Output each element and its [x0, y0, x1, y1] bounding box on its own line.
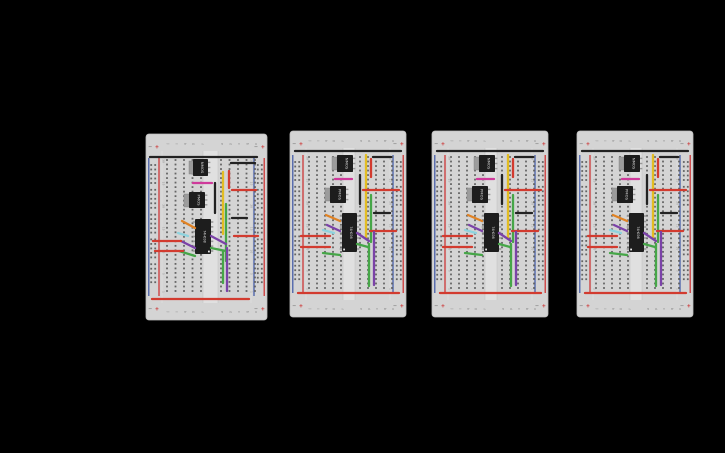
hole: [646, 165, 648, 167]
hole: [183, 186, 185, 188]
hole: [166, 218, 168, 220]
hole: [261, 281, 263, 283]
hole: [316, 283, 318, 285]
hole: [683, 166, 685, 168]
column-letter: j: [450, 308, 454, 310]
hole: [324, 224, 326, 226]
hole: [154, 281, 156, 283]
hole: [367, 179, 369, 181]
hole: [175, 290, 177, 292]
hole: [246, 272, 248, 274]
chip-pmos[interactable]: PMOS: [612, 186, 635, 203]
hole: [627, 269, 629, 271]
hole: [367, 161, 369, 163]
hole: [400, 166, 402, 168]
hole: [687, 236, 689, 238]
hole: [192, 209, 194, 211]
column-letter: g: [474, 308, 478, 310]
hole: [517, 278, 519, 280]
hole: [367, 210, 369, 212]
hole: [237, 281, 239, 283]
hole: [175, 173, 177, 175]
chip-nmos[interactable]: NMOS: [474, 155, 497, 172]
hole: [375, 179, 377, 181]
hole: [308, 210, 310, 212]
hole: [316, 224, 318, 226]
hole: [670, 278, 672, 280]
hole: [662, 287, 664, 289]
hole: [687, 190, 689, 192]
hole: [183, 268, 185, 270]
hole: [581, 274, 583, 276]
column-letter: g: [192, 143, 196, 145]
hole: [400, 199, 402, 201]
hole: [542, 245, 544, 247]
hole: [450, 192, 452, 194]
transistor-leg: [205, 204, 207, 205]
hole: [654, 165, 656, 167]
hole: [585, 204, 587, 206]
hole: [183, 277, 185, 279]
hole: [662, 197, 664, 199]
breadboard-4[interactable]: −+−+−+−+303025252020151510105511jihgfedc…: [577, 131, 693, 317]
hole: [654, 287, 656, 289]
hole: [662, 170, 664, 172]
hole: [595, 255, 597, 257]
hole: [332, 183, 334, 185]
hole: [581, 260, 583, 262]
hole: [154, 248, 156, 250]
hole: [183, 173, 185, 175]
breadboard-2[interactable]: −+−+−+−+303025252020151510105511jihgfedc…: [290, 131, 406, 317]
hole: [678, 192, 680, 194]
hole: [440, 175, 442, 177]
hole: [595, 274, 597, 276]
hole: [257, 207, 259, 209]
hole: [619, 242, 621, 244]
hole: [436, 190, 438, 192]
hole: [261, 272, 263, 274]
hole: [517, 219, 519, 221]
hole: [474, 283, 476, 285]
hole: [332, 255, 334, 257]
row-number: 25: [389, 179, 393, 183]
hole: [359, 278, 361, 280]
hole: [254, 277, 256, 279]
hole: [166, 254, 168, 256]
hole: [538, 204, 540, 206]
hole: [670, 161, 672, 163]
hole: [396, 224, 398, 226]
chip-pmos[interactable]: PMOS: [467, 186, 490, 203]
hole: [474, 242, 476, 244]
hole: [585, 190, 587, 192]
hole: [687, 211, 689, 213]
column-letter: j: [308, 140, 312, 142]
transistor-leg: [495, 158, 497, 159]
hole: [542, 195, 544, 197]
hole: [458, 156, 460, 158]
hole: [440, 220, 442, 222]
hole: [533, 260, 535, 262]
row-number: 1: [250, 291, 254, 293]
hole: [585, 166, 587, 168]
row-number: 20: [162, 204, 166, 208]
hole: [308, 215, 310, 217]
hole: [220, 204, 222, 206]
breadboard-3[interactable]: −+−+−+−+303025252020151510105511jihgfedc…: [432, 131, 548, 317]
hole: [396, 195, 398, 197]
chip-nmos[interactable]: NMOS: [189, 159, 210, 176]
hole: [525, 237, 527, 239]
transistor-leg: [495, 163, 497, 164]
hole: [683, 265, 685, 267]
ic-pin: [357, 248, 359, 250]
hole: [383, 246, 385, 248]
hole: [619, 237, 621, 239]
hole: [237, 249, 239, 251]
hole: [308, 242, 310, 244]
hole: [400, 190, 402, 192]
hole: [254, 245, 256, 247]
hole: [375, 174, 377, 176]
rail-minus-label: −: [680, 142, 684, 148]
hole: [367, 165, 369, 167]
hole: [581, 220, 583, 222]
hole: [683, 254, 685, 256]
hole: [257, 202, 259, 204]
hole: [298, 236, 300, 238]
hole: [440, 179, 442, 181]
hole: [200, 263, 202, 265]
hole: [501, 246, 503, 248]
hole: [466, 165, 468, 167]
hole: [150, 239, 152, 241]
hole: [154, 268, 156, 270]
hole: [436, 236, 438, 238]
hole: [332, 260, 334, 262]
hole: [517, 215, 519, 217]
hole: [400, 278, 402, 280]
hole: [294, 229, 296, 231]
hole: [678, 174, 680, 176]
hole: [458, 283, 460, 285]
hole: [509, 206, 511, 208]
hole: [538, 199, 540, 201]
hole: [391, 237, 393, 239]
hole: [150, 281, 152, 283]
hole: [383, 219, 385, 221]
hole: [150, 223, 152, 225]
column-letter: h: [183, 311, 187, 313]
hole: [482, 278, 484, 280]
hole: [359, 210, 361, 212]
transistor-leg: [205, 199, 207, 200]
hole: [538, 236, 540, 238]
hole: [257, 239, 259, 241]
hole: [400, 215, 402, 217]
hole: [538, 215, 540, 217]
hole: [396, 220, 398, 222]
hole: [229, 209, 231, 211]
hole: [166, 200, 168, 202]
row-number: 5: [162, 273, 166, 275]
hole: [619, 265, 621, 267]
hole: [166, 258, 168, 260]
hole: [359, 206, 361, 208]
hole: [294, 236, 296, 238]
transistor-leg: [488, 194, 490, 195]
hole: [458, 224, 460, 226]
hole: [166, 195, 168, 197]
ic-pin: [627, 237, 629, 239]
hole: [538, 245, 540, 247]
hole: [603, 287, 605, 289]
hole: [683, 211, 685, 213]
hole: [150, 207, 152, 209]
chip-pmos[interactable]: PMOS: [184, 192, 207, 208]
hole: [391, 215, 393, 217]
hole: [474, 255, 476, 257]
hole: [654, 170, 656, 172]
column-letter: a: [391, 140, 395, 142]
hole: [298, 190, 300, 192]
hole: [316, 210, 318, 212]
hole: [340, 260, 342, 262]
hole: [316, 228, 318, 230]
hole: [396, 199, 398, 201]
rail-plus-label: +: [155, 307, 159, 313]
column-letter: j: [166, 311, 170, 313]
hole: [683, 220, 685, 222]
hole: [294, 161, 296, 163]
column-letter: c: [375, 308, 379, 310]
hole: [237, 286, 239, 288]
hole: [501, 255, 503, 257]
hole: [298, 265, 300, 267]
ic-pin: [211, 250, 213, 252]
hole: [246, 227, 248, 229]
hole: [627, 287, 629, 289]
hole: [542, 249, 544, 251]
hole: [367, 174, 369, 176]
hole: [458, 255, 460, 257]
hole: [533, 170, 535, 172]
hole: [383, 201, 385, 203]
hole: [581, 249, 583, 251]
ic-pin: [644, 226, 646, 228]
hole: [175, 204, 177, 206]
hole: [359, 274, 361, 276]
hole: [257, 193, 259, 195]
hole: [509, 224, 511, 226]
hole: [585, 175, 587, 177]
hole: [183, 168, 185, 170]
hole: [391, 170, 393, 172]
hole: [670, 219, 672, 221]
hole: [324, 233, 326, 235]
hole: [678, 283, 680, 285]
hole: [261, 248, 263, 250]
hole: [175, 159, 177, 161]
hole: [237, 209, 239, 211]
hole: [257, 214, 259, 216]
hole: [533, 174, 535, 176]
transistor-leg: [353, 158, 355, 159]
hole: [237, 290, 239, 292]
hole: [687, 245, 689, 247]
hole: [458, 201, 460, 203]
hole: [316, 188, 318, 190]
chip-nmos[interactable]: NMOS: [332, 155, 355, 172]
hole: [254, 222, 256, 224]
hole: [375, 269, 377, 271]
hole: [229, 240, 231, 242]
hole: [261, 218, 263, 220]
chip-pmos[interactable]: PMOS: [325, 186, 348, 203]
hole: [458, 233, 460, 235]
hole: [458, 215, 460, 217]
hole: [450, 219, 452, 221]
hole: [662, 174, 664, 176]
hole: [261, 263, 263, 265]
hole: [308, 161, 310, 163]
hole: [542, 274, 544, 276]
hole: [340, 278, 342, 280]
hole: [611, 237, 613, 239]
hole: [220, 286, 222, 288]
hole: [383, 165, 385, 167]
row-number: 20: [448, 201, 452, 205]
hole: [482, 269, 484, 271]
hole: [436, 211, 438, 213]
hole: [150, 243, 152, 245]
hole: [440, 236, 442, 238]
hole: [261, 202, 263, 204]
hole: [183, 182, 185, 184]
hole: [501, 251, 503, 253]
hole: [340, 224, 342, 226]
chip-nmos[interactable]: NMOS: [619, 155, 642, 172]
hole: [585, 274, 587, 276]
hole: [611, 224, 613, 226]
hole: [257, 281, 259, 283]
hole: [450, 210, 452, 212]
hole: [261, 178, 263, 180]
hole: [646, 206, 648, 208]
hole: [154, 277, 156, 279]
hole: [246, 286, 248, 288]
hole: [375, 206, 377, 208]
hole: [229, 236, 231, 238]
row-number: 30: [306, 156, 310, 160]
hole: [383, 215, 385, 217]
hole: [396, 204, 398, 206]
row-number: 1: [162, 291, 166, 293]
column-letter: h: [183, 143, 187, 145]
hole: [391, 192, 393, 194]
hole: [509, 210, 511, 212]
hole: [670, 206, 672, 208]
hole: [229, 164, 231, 166]
hole: [533, 219, 535, 221]
hole: [359, 283, 361, 285]
hole: [383, 161, 385, 163]
hole: [595, 206, 597, 208]
hole: [246, 177, 248, 179]
hole: [175, 286, 177, 288]
hole: [396, 161, 398, 163]
column-letter: d: [367, 140, 371, 142]
hole: [538, 260, 540, 262]
column-letter: h: [611, 140, 615, 142]
hole: [646, 242, 648, 244]
row-number: 25: [531, 179, 535, 183]
hole: [229, 168, 231, 170]
hole: [308, 192, 310, 194]
hole: [585, 161, 587, 163]
hole: [261, 207, 263, 209]
hole: [440, 254, 442, 256]
hole: [603, 206, 605, 208]
hole: [192, 213, 194, 215]
hole: [220, 186, 222, 188]
hole: [324, 201, 326, 203]
hole: [154, 178, 156, 180]
hole: [458, 237, 460, 239]
hole: [603, 192, 605, 194]
hole: [254, 268, 256, 270]
hole: [367, 219, 369, 221]
hole: [175, 218, 177, 220]
hole: [603, 170, 605, 172]
column-letter: a: [254, 311, 258, 313]
column-letter: g: [619, 140, 623, 142]
hole: [466, 274, 468, 276]
hole: [603, 156, 605, 158]
hole: [670, 251, 672, 253]
hole: [436, 186, 438, 188]
hole: [533, 251, 535, 253]
hole: [538, 240, 540, 242]
hole: [308, 228, 310, 230]
hole: [474, 174, 476, 176]
hole: [294, 179, 296, 181]
hole: [474, 269, 476, 271]
hole: [192, 277, 194, 279]
hole: [585, 229, 587, 231]
hole: [646, 246, 648, 248]
hole: [687, 166, 689, 168]
breadboard-1[interactable]: −+−+−+−+303025252020151510105511jihgfedc…: [146, 134, 267, 320]
hole: [400, 186, 402, 188]
transistor-leg: [346, 194, 348, 195]
row-number: 10: [389, 246, 393, 250]
hole: [509, 174, 511, 176]
ic-pin: [499, 237, 501, 239]
hole: [298, 224, 300, 226]
hole: [396, 236, 398, 238]
hole: [501, 265, 503, 267]
hole: [440, 215, 442, 217]
hole: [474, 206, 476, 208]
row-number: 20: [306, 201, 310, 205]
hole: [298, 269, 300, 271]
hole: [603, 274, 605, 276]
row-number: 15: [531, 224, 535, 228]
transistor-leg: [353, 168, 355, 169]
ic-pin: [482, 237, 484, 239]
